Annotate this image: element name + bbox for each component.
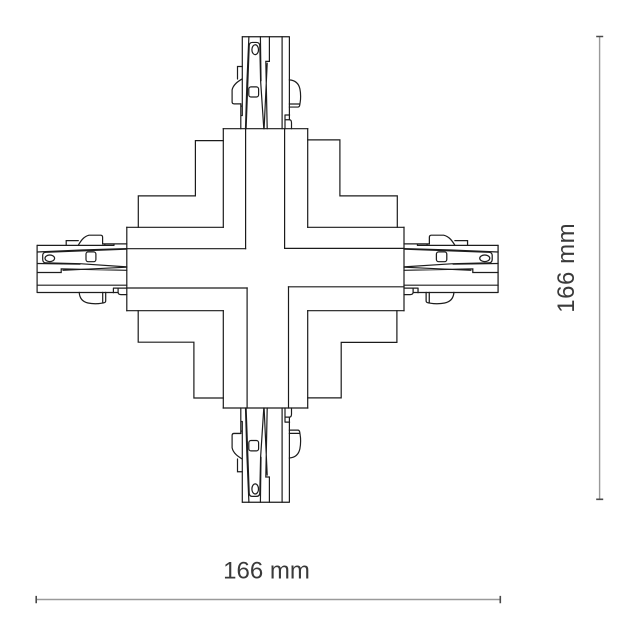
svg-text:166 mm: 166 mm	[223, 558, 310, 585]
svg-text:166 mm: 166 mm	[553, 223, 580, 313]
